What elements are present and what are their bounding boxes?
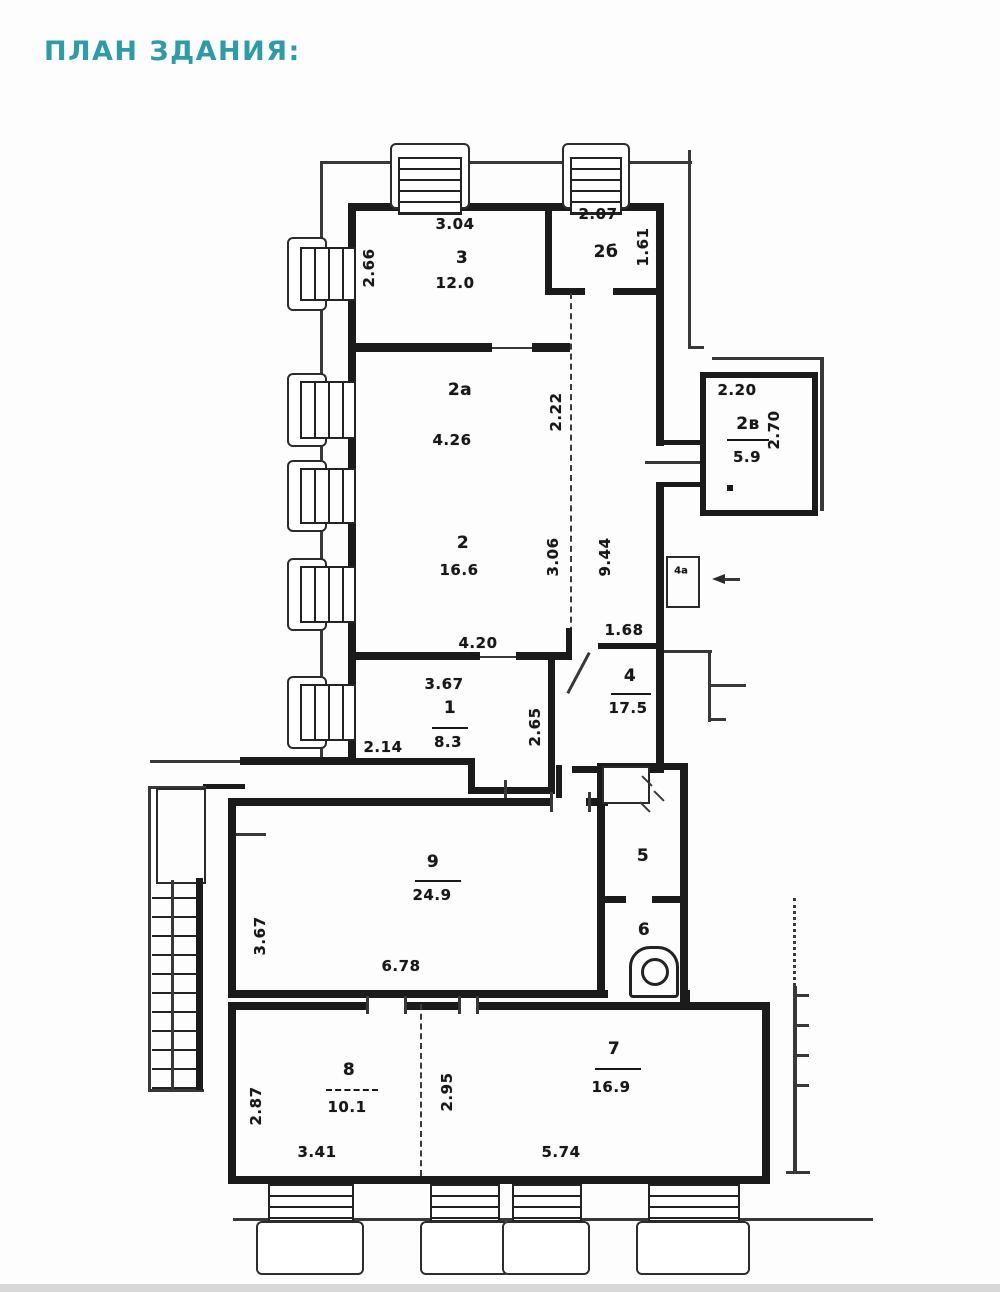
wall xyxy=(348,758,474,765)
room-2a-number: 2а xyxy=(448,380,472,400)
stair-treads xyxy=(152,880,198,1090)
outline-line xyxy=(458,996,461,1014)
dim-r2v-top: 2.20 xyxy=(717,381,756,399)
room-9-area: 24.9 xyxy=(412,886,451,904)
outline-line xyxy=(480,656,516,658)
outline-line xyxy=(476,996,479,1014)
window-symbol xyxy=(300,247,356,301)
outline-line xyxy=(708,684,746,687)
dim-r9-bottom: 6.78 xyxy=(381,957,420,975)
room-4-number: 4 xyxy=(624,666,636,686)
wall xyxy=(468,787,555,794)
outline-line xyxy=(504,780,507,800)
window-symbol xyxy=(300,381,356,439)
dim-r1-bottom-left: 2.14 xyxy=(363,738,402,756)
room-7-number: 7 xyxy=(608,1039,620,1059)
window-symbol xyxy=(300,468,356,524)
window-symbol xyxy=(398,157,462,215)
room-3-number: 3 xyxy=(456,248,468,268)
wall xyxy=(240,757,352,765)
fraction-line xyxy=(595,1068,641,1070)
wall xyxy=(228,1002,770,1010)
wall xyxy=(680,763,688,998)
fraction-line xyxy=(432,727,468,729)
outline-line xyxy=(322,161,692,164)
outline-line xyxy=(492,347,532,349)
corridor-partition xyxy=(570,293,572,653)
room-1-number: 1 xyxy=(444,698,456,718)
dim-r1-right: 2.65 xyxy=(526,707,544,746)
room-2-area: 16.6 xyxy=(439,561,478,579)
wall xyxy=(348,652,572,660)
page-edge xyxy=(0,1284,1000,1292)
wall xyxy=(203,784,245,789)
fraction-line xyxy=(415,880,461,882)
dim-r2-bottom: 4.20 xyxy=(458,634,497,652)
room-1-area: 8.3 xyxy=(434,733,462,751)
outline-line xyxy=(320,161,323,239)
wall xyxy=(228,1176,770,1184)
dim-r2a-width: 4.26 xyxy=(432,431,471,449)
outline-line xyxy=(320,625,323,678)
shaft-4a-label: 4а xyxy=(674,566,688,577)
wall-dot xyxy=(727,485,733,491)
wall-opening xyxy=(585,288,613,295)
wall xyxy=(664,482,702,487)
dim-r8-left: 2.87 xyxy=(247,1086,265,1125)
outline-line xyxy=(550,792,553,812)
dim-r7-bottom: 5.74 xyxy=(541,1143,580,1161)
room-3-area: 12.0 xyxy=(435,274,474,292)
outline-line xyxy=(797,1024,809,1027)
fence-dotted-line xyxy=(793,898,796,986)
outline-line xyxy=(708,718,726,721)
dim-r4-above: 1.68 xyxy=(604,621,643,639)
outline-line xyxy=(786,1171,810,1174)
room-78-partition xyxy=(420,1004,422,1176)
outline-line xyxy=(653,790,664,801)
closet-outline xyxy=(602,766,650,804)
outline-line xyxy=(404,996,407,1014)
dim-r1-top: 3.67 xyxy=(424,675,463,693)
toilet-bowl-icon xyxy=(641,958,669,986)
outline-line xyxy=(150,760,242,763)
outline-line xyxy=(236,833,266,836)
window-symbol xyxy=(648,1184,740,1222)
outline-line xyxy=(688,346,704,349)
room-2-number: 2 xyxy=(457,533,469,553)
window-symbol xyxy=(430,1184,500,1222)
shaft-4a-outline xyxy=(666,556,700,608)
wall xyxy=(228,990,608,998)
room-5-number: 5 xyxy=(637,846,649,866)
room-2v-number: 2в xyxy=(736,414,760,434)
room-6-number: 6 xyxy=(638,920,650,940)
outline-line xyxy=(660,650,712,653)
dim-corridor-total: 9.44 xyxy=(596,537,614,576)
wall-opening xyxy=(461,1002,476,1010)
room-7-area: 16.9 xyxy=(591,1078,630,1096)
wall-opening xyxy=(656,446,664,482)
wall xyxy=(762,1002,770,1184)
wall xyxy=(598,643,664,649)
outline-line xyxy=(797,994,809,997)
room-8-area: 10.1 xyxy=(327,1098,366,1116)
outline-line xyxy=(366,996,369,1014)
outline-line xyxy=(171,880,174,1090)
window-bay xyxy=(502,1221,590,1275)
fraction-line-dashed xyxy=(326,1089,378,1091)
floor-plan-drawing: 3 12.0 2б 2а 2 16.6 2в 5.9 4 17.5 4а 1 8… xyxy=(0,0,1000,1292)
wall xyxy=(228,798,236,998)
outline-line xyxy=(588,792,591,812)
wall xyxy=(228,1002,236,1184)
wall-opening xyxy=(369,1002,404,1010)
window-symbol xyxy=(268,1184,354,1222)
room-4-area: 17.5 xyxy=(608,699,647,717)
window-symbol xyxy=(300,566,356,623)
fraction-line xyxy=(727,439,769,441)
stair-landing xyxy=(156,788,206,884)
dim-r2v-right: 2.70 xyxy=(765,410,783,449)
window-bay xyxy=(420,1221,510,1275)
dim-r2b-top: 2.07 xyxy=(578,205,617,223)
dim-corridor-upper: 2.22 xyxy=(547,392,565,431)
fence-line xyxy=(793,986,797,1174)
wall-opening xyxy=(626,896,652,903)
room-2b-number: 2б xyxy=(594,242,619,262)
outline-line xyxy=(688,150,691,348)
room-9-number: 9 xyxy=(427,852,439,872)
dim-divider-78: 2.95 xyxy=(438,1072,456,1111)
wall xyxy=(548,652,555,792)
wall-opening xyxy=(552,798,586,806)
dim-r9-left: 3.67 xyxy=(251,916,269,955)
dim-r3-top: 3.04 xyxy=(435,215,474,233)
outline-line xyxy=(148,786,151,1092)
window-bay xyxy=(636,1221,750,1275)
wall xyxy=(545,203,552,295)
wall xyxy=(664,440,702,445)
window-symbol xyxy=(300,684,356,741)
dim-r3-left: 2.66 xyxy=(360,248,378,287)
outline-line xyxy=(797,1084,809,1087)
window-bay xyxy=(256,1221,364,1275)
dim-r2-right: 3.06 xyxy=(544,537,562,576)
wall xyxy=(348,343,570,352)
window-symbol xyxy=(512,1184,582,1222)
dim-r8-bottom: 3.41 xyxy=(297,1143,336,1161)
scanned-floor-plan-page: ПЛАН ЗДАНИЯ: xyxy=(0,0,1000,1292)
fraction-line xyxy=(611,693,651,695)
outline-line xyxy=(820,357,824,511)
outline-line xyxy=(712,357,824,360)
outline-line xyxy=(320,303,323,375)
room-2v-area: 5.9 xyxy=(733,448,761,466)
room-8-number: 8 xyxy=(343,1060,355,1080)
outline-line xyxy=(724,578,740,581)
dim-r2b-right: 1.61 xyxy=(634,227,652,266)
outline-line xyxy=(797,1054,809,1057)
